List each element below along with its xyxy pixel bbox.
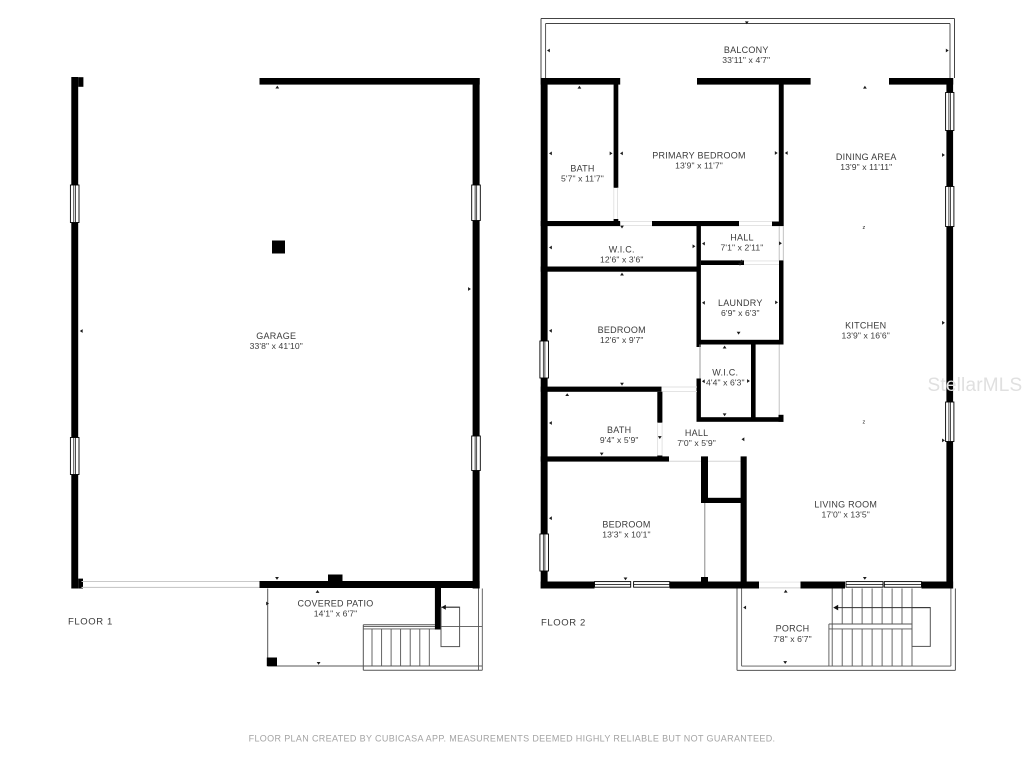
svg-text:6'9" x 6'3": 6'9" x 6'3": [721, 308, 760, 318]
svg-text:12'6" x 9'7": 12'6" x 9'7": [600, 335, 644, 345]
svg-text:W.I.C.: W.I.C.: [609, 245, 635, 255]
svg-text:12'6" x 3'6": 12'6" x 3'6": [600, 255, 644, 265]
svg-text:FLOOR 1: FLOOR 1: [68, 617, 113, 628]
svg-text:13'9" x 11'11": 13'9" x 11'11": [840, 162, 892, 172]
svg-text:7'0" x 5'9": 7'0" x 5'9": [677, 438, 716, 448]
svg-text:17'0" x 13'5": 17'0" x 13'5": [821, 510, 869, 520]
svg-text:HALL: HALL: [730, 233, 754, 243]
svg-text:BEDROOM: BEDROOM: [598, 325, 646, 335]
svg-text:HALL: HALL: [685, 428, 709, 438]
svg-text:7'1" x 2'11": 7'1" x 2'11": [721, 243, 764, 253]
svg-text:BATH: BATH: [607, 425, 631, 435]
svg-text:PRIMARY BEDROOM: PRIMARY BEDROOM: [652, 151, 745, 161]
svg-text:COVERED PATIO: COVERED PATIO: [298, 599, 374, 609]
svg-text:BALCONY: BALCONY: [724, 45, 769, 55]
svg-text:GARAGE: GARAGE: [256, 331, 296, 341]
svg-text:StellarMLS: StellarMLS: [928, 375, 1023, 396]
svg-text:5'7" x 11'7": 5'7" x 11'7": [561, 174, 604, 184]
svg-text:33'8" x 41'10": 33'8" x 41'10": [250, 341, 303, 351]
svg-text:KITCHEN: KITCHEN: [845, 321, 886, 331]
svg-text:BATH: BATH: [570, 164, 594, 174]
svg-text:33'11" x 4'7": 33'11" x 4'7": [722, 55, 770, 65]
svg-text:LIVING ROOM: LIVING ROOM: [814, 500, 877, 510]
svg-text:14'1" x 6'7": 14'1" x 6'7": [314, 609, 358, 619]
svg-text:13'9" x 11'7": 13'9" x 11'7": [675, 161, 723, 171]
svg-text:FLOOR 2: FLOOR 2: [541, 618, 586, 629]
svg-text:z: z: [863, 225, 866, 231]
svg-text:13'3" x 10'1": 13'3" x 10'1": [602, 530, 650, 540]
svg-text:FLOOR PLAN CREATED BY CUBICASA: FLOOR PLAN CREATED BY CUBICASA APP. MEAS…: [249, 734, 776, 744]
svg-text:z: z: [863, 420, 866, 426]
svg-text:9'4" x 5'9": 9'4" x 5'9": [600, 435, 639, 445]
svg-text:LAUNDRY: LAUNDRY: [718, 298, 763, 308]
svg-text:PORCH: PORCH: [776, 624, 810, 634]
svg-text:7'8" x 6'7": 7'8" x 6'7": [773, 634, 812, 644]
svg-text:4'4" x 6'3": 4'4" x 6'3": [706, 378, 745, 388]
svg-text:DINING AREA: DINING AREA: [836, 152, 897, 162]
svg-text:BEDROOM: BEDROOM: [602, 520, 650, 530]
svg-text:W.I.C.: W.I.C.: [712, 368, 738, 378]
svg-text:13'9" x 16'6": 13'9" x 16'6": [841, 331, 889, 341]
